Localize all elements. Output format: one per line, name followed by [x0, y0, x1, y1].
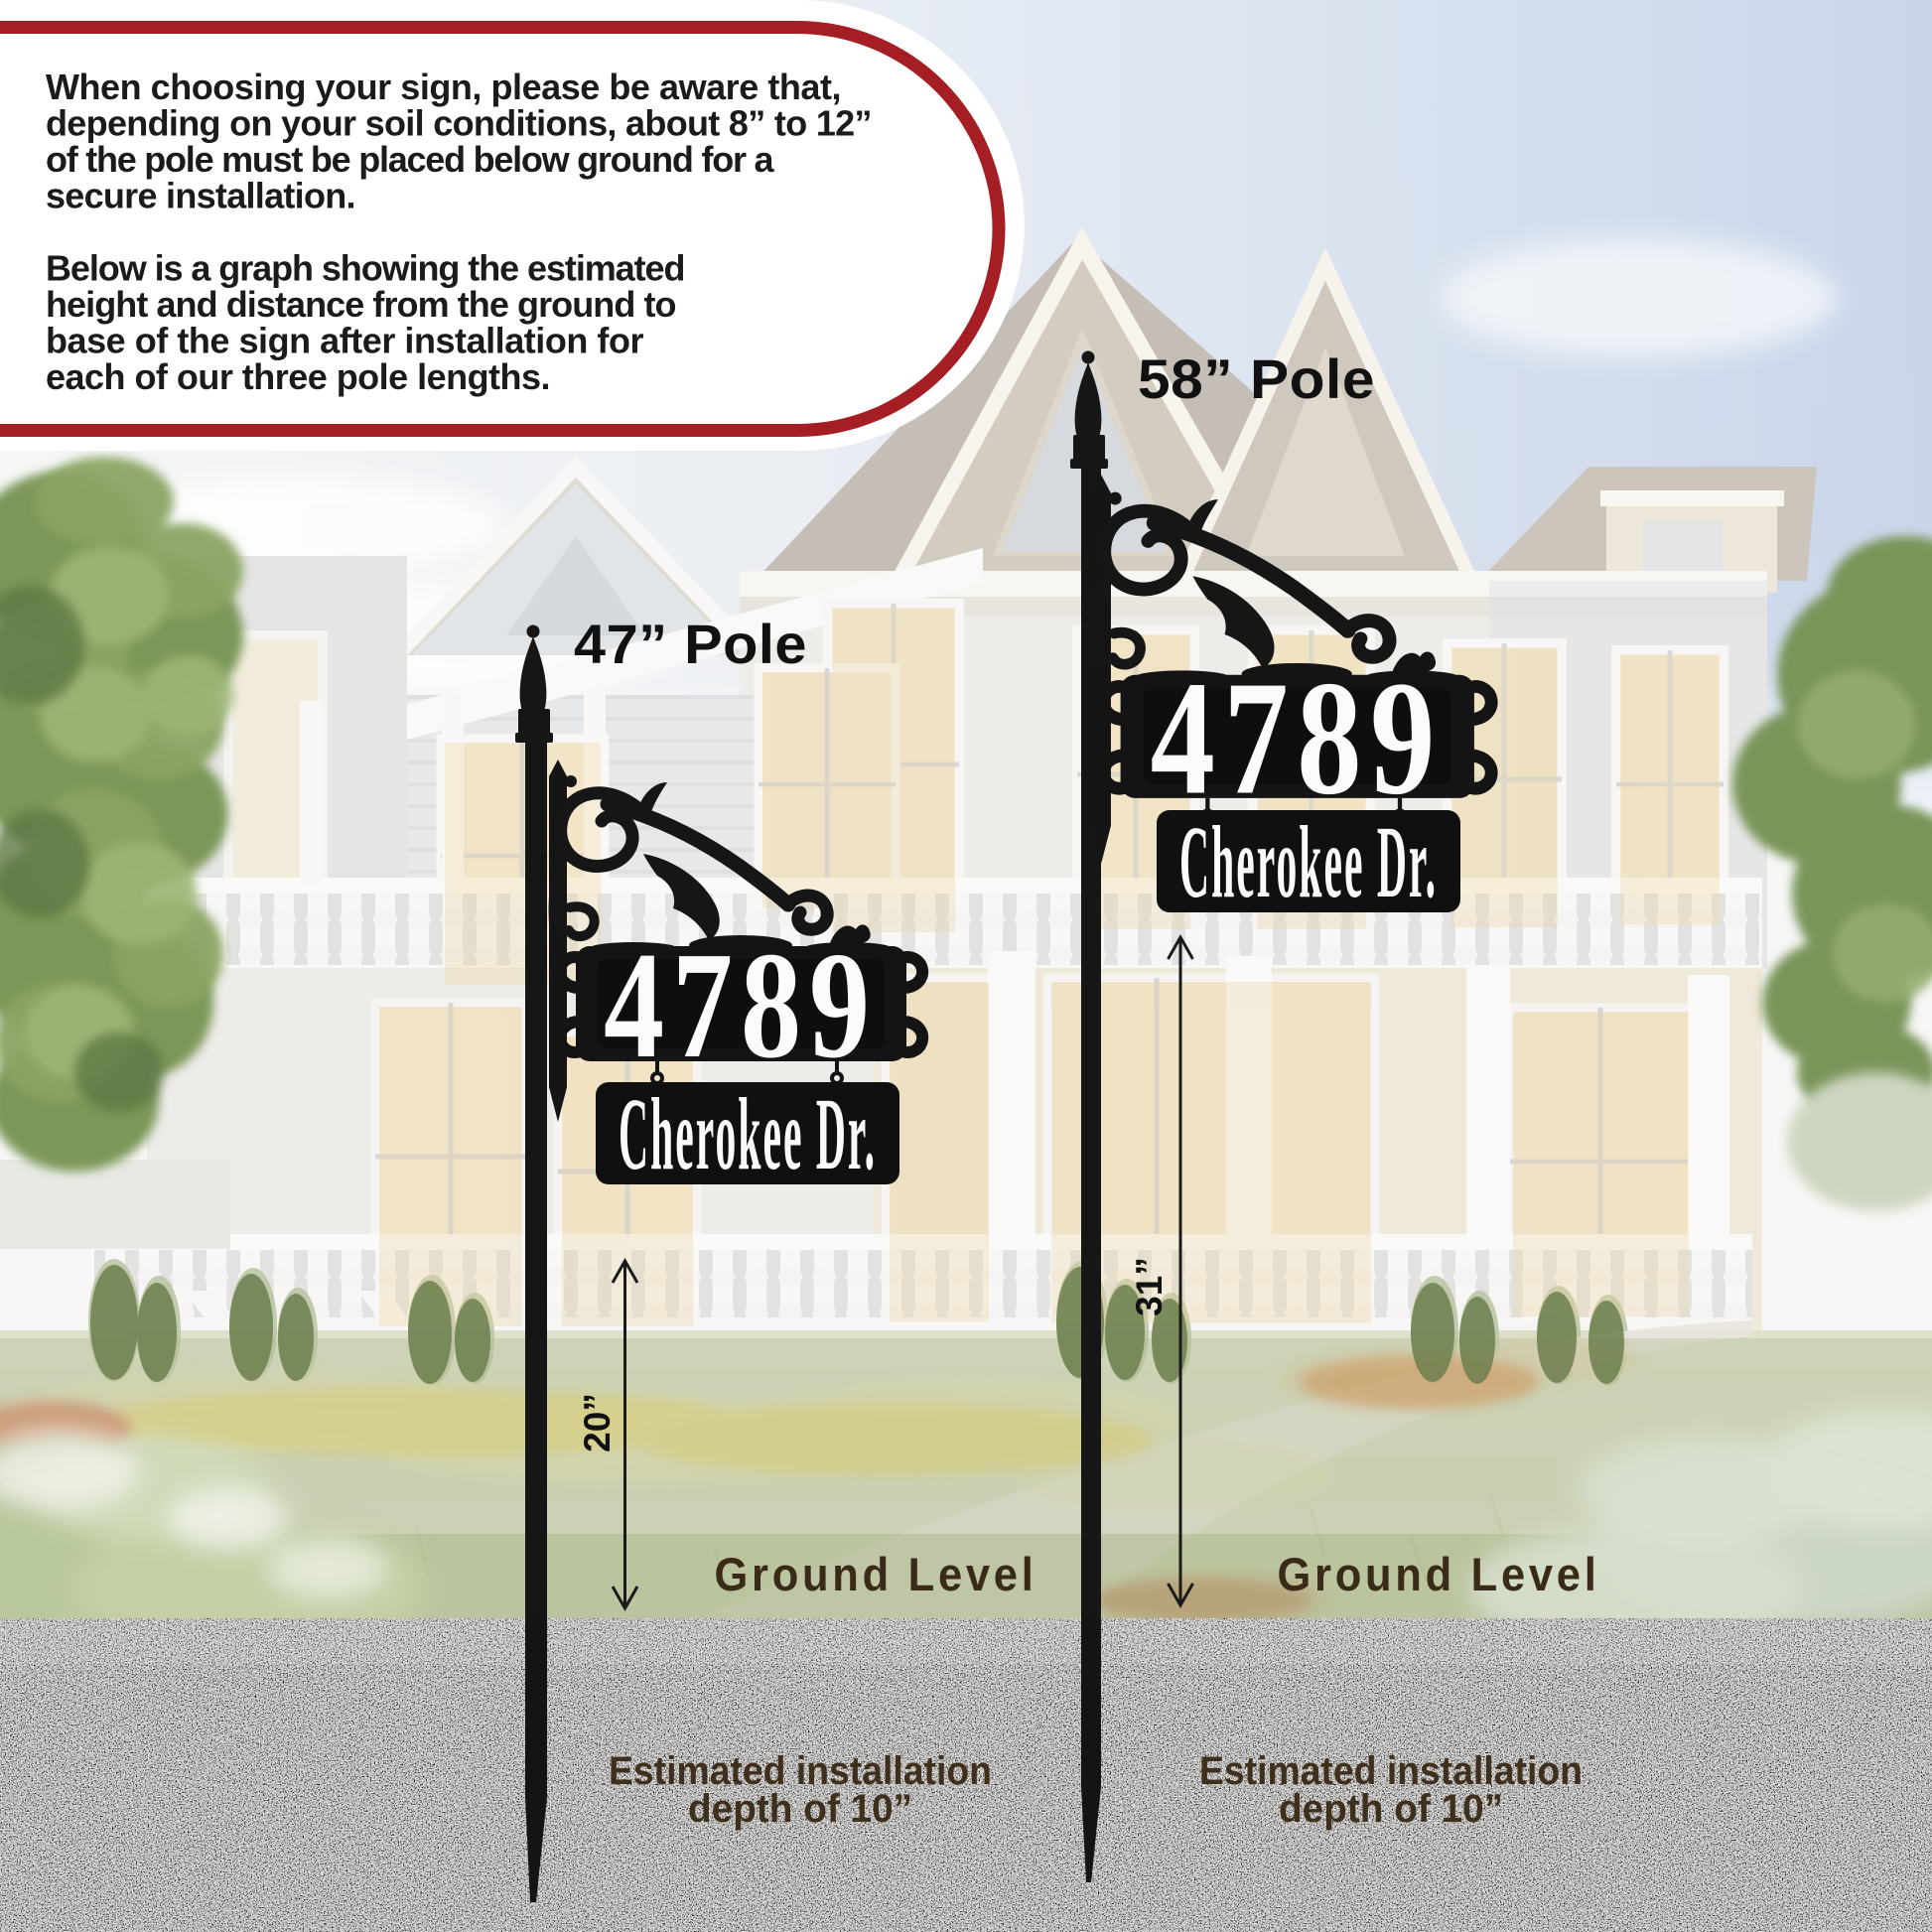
svg-text:base of the sign after install: base of the sign after installation for [46, 321, 645, 361]
svg-text:When choosing your sign, pleas: When choosing your sign, please be aware… [46, 67, 843, 107]
svg-text:20”: 20” [577, 1393, 618, 1452]
svg-text:Ground Level: Ground Level [1278, 1548, 1600, 1600]
svg-text:of the pole must be placed bel: of the pole must be placed below ground … [46, 139, 775, 180]
svg-text:each of our three pole lengths: each of our three pole lengths. [46, 356, 552, 397]
svg-text:31”: 31” [1129, 1257, 1170, 1316]
svg-text:depending on your soil conditi: depending on your soil conditions, about… [46, 103, 874, 144]
svg-text:Cherokee Dr.: Cherokee Dr. [619, 1077, 877, 1191]
svg-text:secure installation.: secure installation. [46, 176, 357, 216]
svg-text:Below is a graph showing the e: Below is a graph showing the estimated [46, 248, 687, 289]
svg-text:depth of 10”: depth of 10” [1279, 1787, 1503, 1831]
svg-text:47” Pole: 47” Pole [574, 613, 807, 675]
svg-text:height and distance from the g: height and distance from the ground to [46, 284, 678, 325]
svg-text:depth of 10”: depth of 10” [688, 1787, 912, 1831]
svg-text:Ground Level: Ground Level [715, 1548, 1037, 1600]
svg-text:58” Pole: 58” Pole [1138, 347, 1375, 410]
